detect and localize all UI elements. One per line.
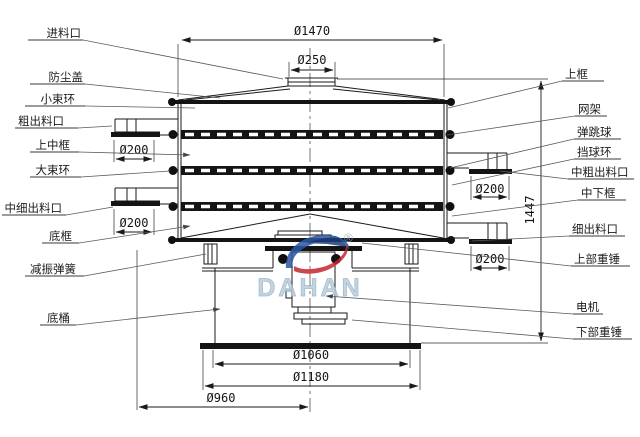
label-fine-outlet: 细出料口 [572, 222, 618, 236]
dim-outlet-right-upper: Ø200 [476, 182, 505, 196]
label-bottom-frame: 底框 [49, 229, 72, 243]
label-lower-weight: 下部重锤 [576, 325, 622, 339]
dim-inlet-diameter: Ø250 [298, 53, 327, 67]
deck-clamp-band-lower [169, 202, 455, 211]
label-medium-coarse-outlet: 中粗出料口 [571, 165, 629, 179]
dim-top-outer-diameter: Ø1470 [294, 24, 330, 38]
label-motor: 电机 [576, 300, 599, 314]
dim-outlet-left-upper: Ø200 [120, 143, 149, 157]
deck-clamp-band-upper [169, 130, 455, 139]
registered-mark: ® [344, 231, 353, 245]
label-coarse-outlet: 粗出料口 [18, 114, 64, 128]
label-large-clamp-ring: 大束环 [36, 163, 71, 177]
label-feed-inlet: 进料口 [47, 26, 82, 40]
dim-outlet-right-lower: Ø200 [476, 252, 505, 266]
label-dust-cover: 防尘盖 [49, 70, 84, 84]
feed-inlet-stub [285, 78, 338, 86]
top-clamp-ring [168, 98, 455, 106]
label-medium-fine-outlet: 中细出料口 [5, 201, 63, 215]
dim-overall-height: 1447 [523, 196, 537, 225]
label-mesh-frame: 网架 [578, 103, 601, 116]
label-damping-spring: 减振弹簧 [30, 262, 76, 276]
label-upper-middle-frame: 上中框 [36, 138, 71, 152]
bottom-cone [181, 214, 443, 238]
dim-base-outer-diameter: Ø1180 [293, 370, 329, 384]
label-ball-stop-ring: 挡球环 [577, 145, 612, 159]
label-upper-frame: 上框 [565, 67, 588, 81]
label-small-clamp-ring: 小束环 [41, 93, 76, 106]
dim-base-left-diameter: Ø960 [207, 391, 236, 405]
vibrating-screen-technical-drawing: Ø1470 Ø250 Ø200 Ø200 Ø200 Ø200 1447 Ø106… [0, 0, 640, 437]
dim-outlet-left-lower: Ø200 [120, 216, 149, 230]
damping-spring-right [405, 244, 418, 264]
fine-outlet-spout-left-lower [111, 188, 178, 206]
label-bouncing-ball: 弹跳球 [577, 125, 612, 139]
coarse-outlet-spout-left-upper [111, 119, 178, 137]
label-base-drum: 底桶 [47, 311, 70, 325]
deck-clamp-band-middle [169, 166, 455, 175]
label-middle-lower-frame: 中下框 [581, 186, 616, 200]
dim-base-inner-diameter: Ø1060 [293, 348, 329, 362]
label-upper-weight: 上部重锤 [574, 252, 620, 266]
